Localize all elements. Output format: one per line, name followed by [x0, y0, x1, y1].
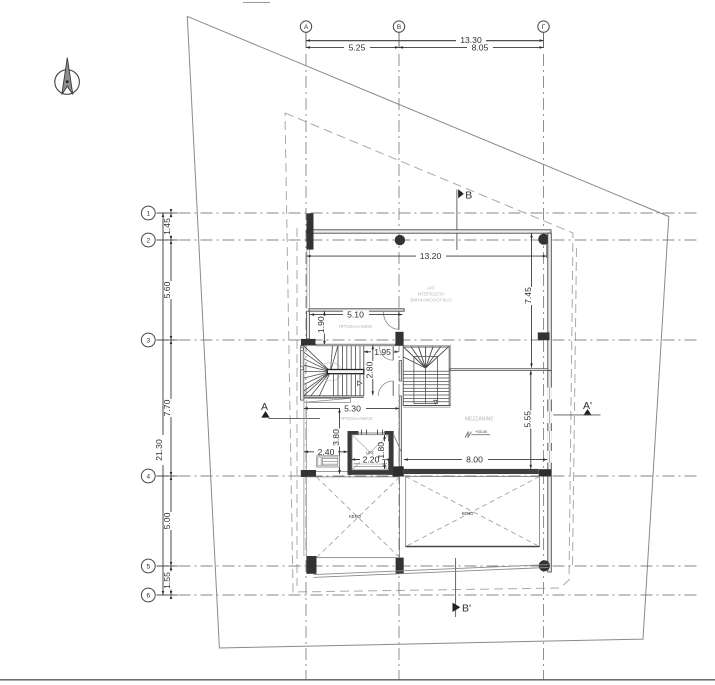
svg-text:B: B: [465, 189, 472, 201]
svg-text:1.45: 1.45: [162, 218, 172, 235]
svg-text:ΚΕΝΟ: ΚΕΝΟ: [349, 514, 362, 519]
svg-text:5.60: 5.60: [162, 281, 172, 298]
svg-text:ΠΡΟΘΑΛΑΜΟΣ: ΠΡΟΘΑΛΑΜΟΣ: [339, 416, 373, 421]
svg-text:ΝΤΕΠΟΖΙΤΑ: ΝΤΕΠΟΖΙΤΑ: [418, 292, 446, 298]
svg-text:2: 2: [146, 238, 150, 245]
svg-text:21.30: 21.30: [154, 439, 164, 461]
svg-text:(ΜΗΧΑΝΟΛΟΓΙΚΑ): (ΜΗΧΑΝΟΛΟΓΙΚΑ): [410, 297, 452, 303]
svg-text:7.70: 7.70: [162, 399, 172, 416]
svg-text:B': B': [462, 603, 471, 615]
svg-text:MEZZANINE: MEZZANINE: [465, 416, 495, 422]
svg-text:5.30: 5.30: [344, 404, 361, 414]
svg-text:ΠΡΟΘΑΛΑΜΟΣ: ΠΡΟΘΑΛΑΜΟΣ: [339, 324, 373, 329]
svg-text:8.00: 8.00: [466, 455, 483, 465]
svg-text:3: 3: [146, 338, 150, 345]
svg-text:3.80: 3.80: [331, 429, 341, 446]
svg-text:1: 1: [146, 211, 150, 218]
svg-text:1.80: 1.80: [376, 442, 386, 459]
svg-text:1.90: 1.90: [316, 316, 326, 333]
svg-text:7.45: 7.45: [523, 287, 533, 304]
svg-text:ΚΕΝΟ: ΚΕΝΟ: [462, 511, 475, 516]
svg-text:1.55: 1.55: [162, 572, 172, 589]
svg-text:2.80: 2.80: [364, 361, 374, 378]
svg-text:A: A: [261, 401, 268, 413]
svg-text:5.00: 5.00: [162, 512, 172, 529]
svg-text:+03.40: +03.40: [475, 430, 487, 434]
svg-text:5: 5: [146, 564, 150, 571]
svg-text:Γ: Γ: [542, 24, 546, 31]
svg-text:5.55: 5.55: [522, 411, 532, 428]
svg-text:13.20: 13.20: [420, 251, 442, 261]
svg-text:5.25: 5.25: [349, 42, 366, 52]
svg-text:8.05: 8.05: [472, 42, 489, 52]
svg-text:6: 6: [146, 593, 150, 600]
svg-text:A/C: A/C: [427, 286, 436, 292]
svg-text:B: B: [397, 24, 401, 31]
svg-text:4: 4: [146, 474, 150, 481]
svg-text:A: A: [304, 24, 309, 31]
svg-text:5.10: 5.10: [347, 310, 364, 320]
